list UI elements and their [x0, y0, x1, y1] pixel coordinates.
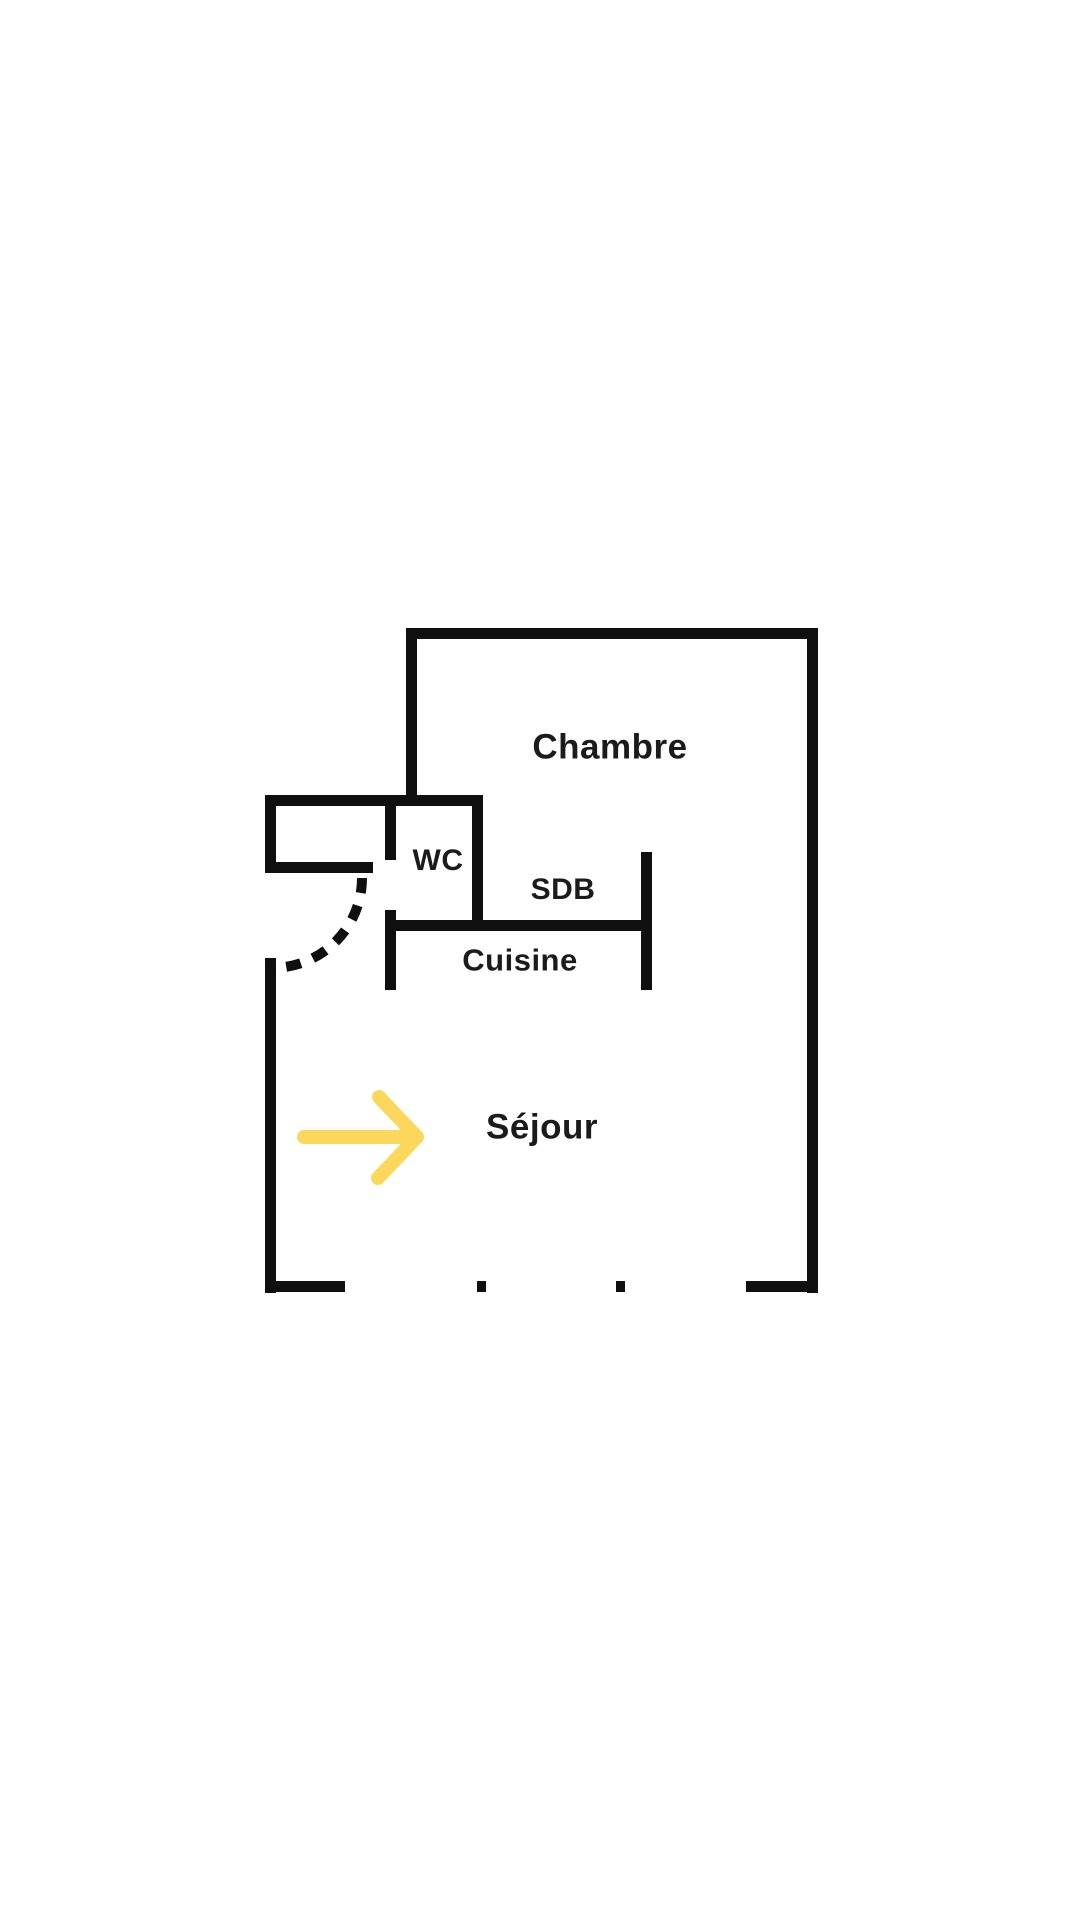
room-label-sdb: SDB — [531, 875, 596, 905]
bottom-window-tick-2 — [616, 1281, 625, 1292]
entry-top-wall — [265, 795, 483, 806]
entry-left-wall — [265, 795, 276, 873]
room-label-cuisine: Cuisine — [462, 945, 577, 976]
floor-plan-page: Chambre WC SDB Cuisine Séjour — [0, 0, 1080, 1920]
sejour-left-wall — [265, 958, 276, 1293]
wc-right-wall — [472, 795, 483, 931]
room-label-sejour: Séjour — [486, 1110, 598, 1145]
entry-bottom-wall — [265, 862, 373, 873]
entrance-arrow-layer — [304, 1097, 417, 1178]
right-wall — [807, 628, 818, 1293]
wc-left-wall-upper — [385, 806, 396, 860]
bottom-wall-left — [265, 1281, 345, 1292]
door-swing-arc — [272, 878, 362, 968]
bottom-wall-right — [746, 1281, 818, 1292]
door-swing-layer — [272, 878, 362, 968]
chambre-left-wall — [406, 628, 417, 806]
bottom-window-tick-1 — [477, 1281, 486, 1292]
kitchen-top-wall — [385, 920, 641, 931]
top-wall — [406, 628, 818, 639]
room-label-wc: WC — [413, 846, 464, 876]
sdb-right-wall — [641, 852, 652, 990]
room-label-chambre: Chambre — [532, 730, 687, 765]
